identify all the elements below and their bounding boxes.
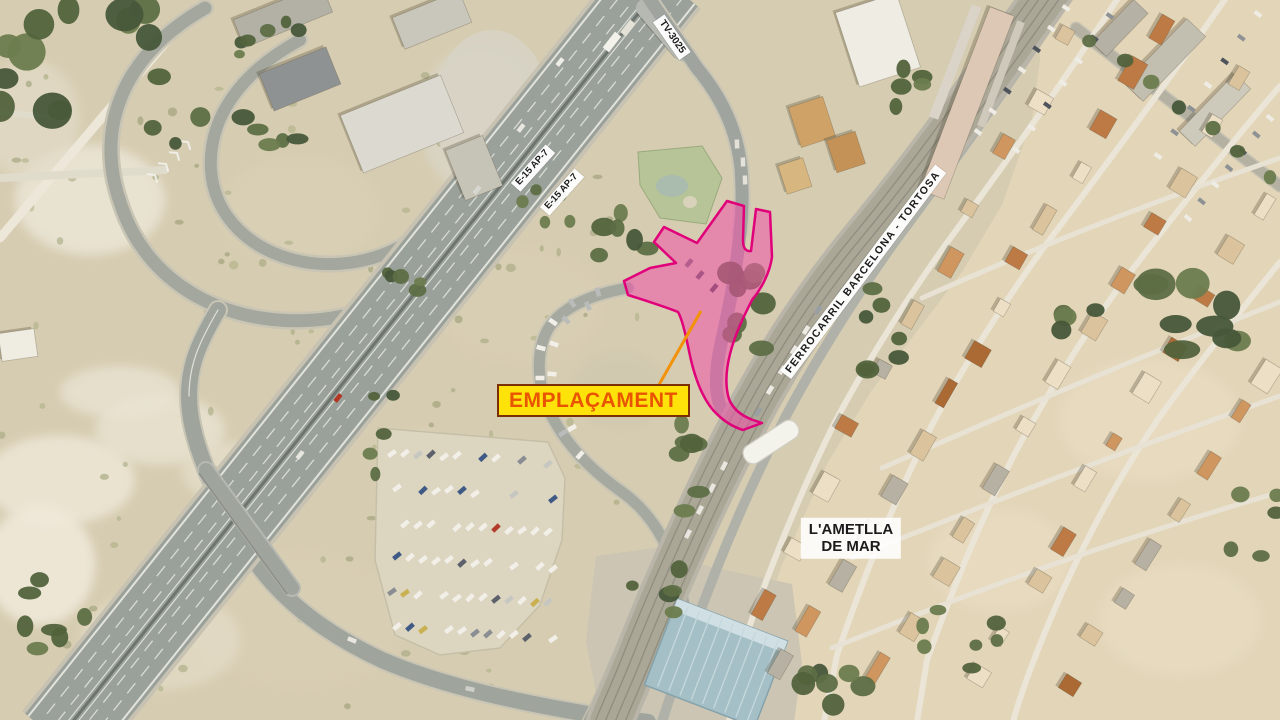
aerial-photo-canvas — [0, 0, 1280, 720]
location-map-figure: TV-3025 E-15 AP-7 E-15 AP-7 FERROCARRIL … — [0, 0, 1280, 720]
